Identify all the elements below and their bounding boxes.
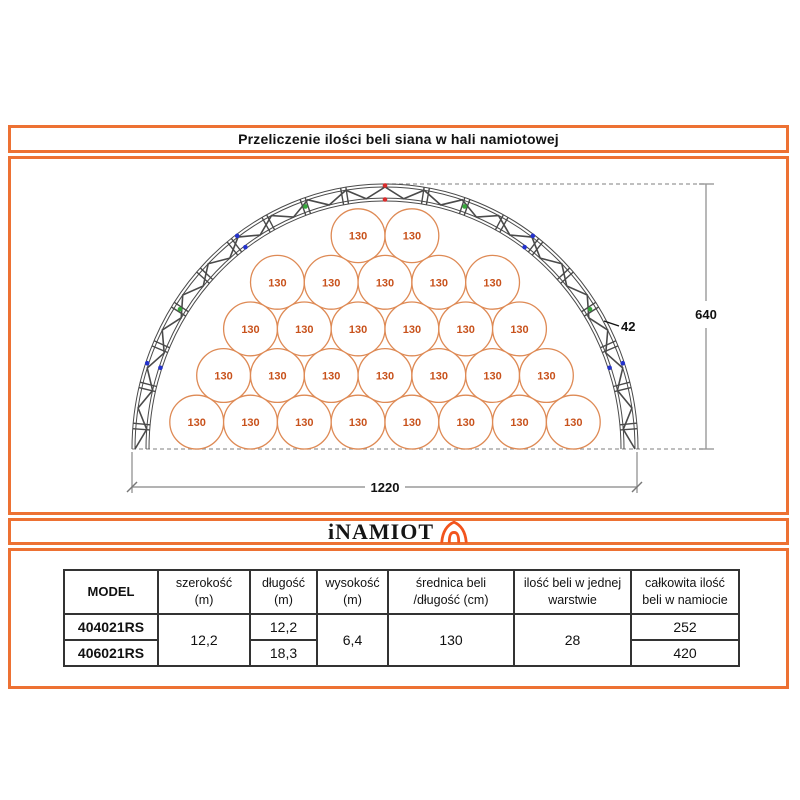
header-szerokosc: szerokość (m): [158, 570, 250, 614]
svg-text:130: 130: [295, 417, 313, 429]
header-ilosc-warstwa: ilość beli w jednej warstwie: [514, 570, 631, 614]
cell-dlugosc-2: 18,3: [250, 640, 317, 666]
svg-text:130: 130: [457, 324, 475, 336]
svg-text:130: 130: [241, 324, 259, 336]
title-bar: Przeliczenie ilości beli siana w hali na…: [8, 125, 789, 153]
cell-model-1: 404021RS: [64, 614, 158, 640]
header-dlugosc: długość (m): [250, 570, 317, 614]
brand-logo-text: iNAMIOT: [328, 521, 434, 543]
svg-text:1220: 1220: [371, 480, 400, 495]
svg-text:130: 130: [430, 371, 448, 383]
svg-text:130: 130: [403, 231, 421, 243]
diagram-panel: 6401220130130130130130130130130130130130…: [8, 156, 789, 515]
cell-srednica: 130: [388, 614, 514, 666]
svg-text:130: 130: [349, 417, 367, 429]
document-page: Przeliczenie ilości beli siana w hali na…: [0, 0, 800, 800]
header-wysokosc: wysokość (m): [317, 570, 388, 614]
cell-wysokosc: 6,4: [317, 614, 388, 666]
svg-text:130: 130: [214, 371, 232, 383]
svg-text:130: 130: [510, 324, 528, 336]
svg-text:42: 42: [621, 319, 635, 334]
cell-model-2: 406021RS: [64, 640, 158, 666]
svg-text:130: 130: [510, 417, 528, 429]
svg-text:640: 640: [695, 307, 717, 322]
header-srednica: średnica beli /długość (cm): [388, 570, 514, 614]
svg-text:130: 130: [349, 231, 367, 243]
table-header-row: MODEL szerokość (m) długość (m) wysokość…: [64, 570, 739, 614]
header-model: MODEL: [64, 570, 158, 614]
cell-calkowita-1: 252: [631, 614, 739, 640]
table-row-404021rs: 404021RS 12,2 12,2 6,4 130 28 252: [64, 614, 739, 640]
svg-text:130: 130: [403, 417, 421, 429]
svg-text:130: 130: [483, 277, 501, 289]
spec-table: MODEL szerokość (m) długość (m) wysokość…: [63, 569, 740, 667]
svg-text:130: 130: [241, 417, 259, 429]
spec-table-panel: MODEL szerokość (m) długość (m) wysokość…: [8, 548, 789, 689]
cell-szerokosc: 12,2: [158, 614, 250, 666]
svg-text:130: 130: [457, 417, 475, 429]
svg-text:130: 130: [430, 277, 448, 289]
svg-text:130: 130: [322, 371, 340, 383]
cell-ilosc-warstwa: 28: [514, 614, 631, 666]
svg-text:130: 130: [268, 277, 286, 289]
logo-bar: iNAMIOT: [8, 518, 789, 545]
cell-calkowita-2: 420: [631, 640, 739, 666]
header-calkowita: całkowita ilość beli w namiocie: [631, 570, 739, 614]
tent-cross-section-diagram: 6401220130130130130130130130130130130130…: [11, 159, 786, 512]
svg-text:130: 130: [376, 277, 394, 289]
svg-text:130: 130: [349, 324, 367, 336]
svg-text:130: 130: [295, 324, 313, 336]
svg-text:130: 130: [403, 324, 421, 336]
cell-dlugosc-1: 12,2: [250, 614, 317, 640]
svg-text:130: 130: [268, 371, 286, 383]
tent-icon: [439, 519, 469, 544]
svg-text:130: 130: [564, 417, 582, 429]
page-title: Przeliczenie ilości beli siana w hali na…: [238, 131, 559, 147]
svg-text:130: 130: [483, 371, 501, 383]
svg-text:130: 130: [322, 277, 340, 289]
svg-text:130: 130: [376, 371, 394, 383]
svg-text:130: 130: [188, 417, 206, 429]
svg-text:130: 130: [537, 371, 555, 383]
